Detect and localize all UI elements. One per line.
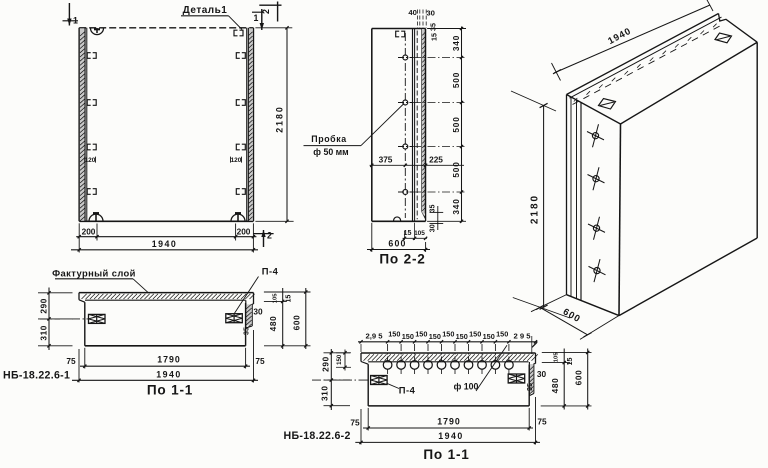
svg-text:375: 375: [379, 154, 393, 164]
svg-text:Деталь1: Деталь1: [183, 5, 228, 16]
svg-text:1940: 1940: [438, 431, 464, 441]
svg-text:75: 75: [66, 356, 76, 366]
svg-text:150: 150: [402, 332, 414, 341]
svg-text:П-4: П-4: [262, 266, 279, 277]
svg-text:35: 35: [526, 383, 534, 391]
svg-text:75: 75: [350, 417, 360, 427]
svg-text:150: 150: [429, 332, 441, 341]
svg-text:30: 30: [429, 224, 437, 232]
svg-text:150: 150: [483, 332, 495, 341]
svg-text:310: 310: [320, 385, 330, 401]
svg-text:480: 480: [268, 316, 278, 332]
svg-text:НБ-18.22.6-2: НБ-18.22.6-2: [284, 430, 351, 442]
svg-text:1940: 1940: [152, 239, 178, 249]
svg-text:500: 500: [451, 161, 461, 177]
svg-text:150: 150: [336, 354, 343, 365]
svg-text:2: 2: [267, 231, 272, 241]
svg-text:225: 225: [429, 154, 443, 164]
svg-text:120: 120: [85, 157, 96, 164]
svg-text:600: 600: [573, 370, 583, 386]
svg-text:15: 15: [566, 358, 574, 366]
svg-text:150: 150: [442, 330, 454, 339]
svg-text:500: 500: [451, 116, 461, 132]
svg-text:2180: 2180: [530, 194, 541, 224]
svg-text:НБ-18.22.6-1: НБ-18.22.6-1: [3, 370, 70, 382]
svg-text:105: 105: [414, 230, 425, 237]
svg-text:35: 35: [243, 327, 251, 335]
svg-text:600: 600: [292, 315, 302, 331]
svg-text:105: 105: [273, 293, 279, 304]
svg-text:340: 340: [451, 198, 461, 214]
svg-text:1: 1: [73, 16, 78, 26]
svg-text:15: 15: [430, 33, 438, 41]
svg-text:75: 75: [255, 356, 265, 366]
svg-text:500: 500: [451, 72, 461, 88]
svg-text:340: 340: [451, 35, 461, 51]
svg-text:По 2-2: По 2-2: [379, 252, 425, 267]
svg-text:600: 600: [388, 239, 406, 249]
svg-text:40: 40: [408, 8, 417, 17]
svg-text:2180: 2180: [275, 105, 285, 133]
svg-text:150: 150: [469, 330, 481, 339]
svg-text:30: 30: [253, 307, 263, 317]
svg-text:200: 200: [237, 227, 251, 237]
svg-text:1790: 1790: [157, 355, 181, 365]
svg-text:По 1-1: По 1-1: [423, 447, 469, 462]
svg-text:30: 30: [426, 8, 435, 17]
svg-text:По 1-1: По 1-1: [147, 383, 193, 398]
svg-text:120: 120: [231, 157, 242, 164]
svg-text:310: 310: [38, 325, 48, 341]
svg-text:75: 75: [537, 416, 547, 426]
svg-text:290: 290: [321, 356, 331, 372]
svg-text:ф 50 мм: ф 50 мм: [313, 147, 348, 157]
svg-text:200: 200: [82, 227, 96, 237]
svg-text:35: 35: [430, 23, 438, 31]
svg-text:Фактурный слой: Фактурный слой: [52, 268, 136, 279]
svg-text:1940: 1940: [156, 370, 182, 380]
svg-text:150: 150: [388, 330, 400, 339]
svg-text:2 9 5: 2 9 5: [513, 332, 531, 341]
svg-text:30: 30: [537, 369, 547, 379]
svg-text:480: 480: [550, 378, 560, 394]
svg-text:Пробка: Пробка: [311, 134, 346, 144]
svg-text:П-4: П-4: [399, 385, 416, 396]
svg-text:150: 150: [415, 330, 427, 339]
svg-text:1790: 1790: [437, 416, 461, 426]
svg-text:150: 150: [456, 332, 468, 341]
svg-text:15: 15: [404, 229, 412, 237]
svg-text:2: 2: [261, 9, 271, 14]
svg-text:35: 35: [429, 205, 437, 213]
svg-text:ф 100: ф 100: [454, 382, 479, 392]
svg-text:290: 290: [38, 298, 48, 314]
svg-text:2,9 5: 2,9 5: [365, 332, 383, 341]
svg-text:150: 150: [496, 330, 508, 339]
svg-text:15: 15: [285, 295, 293, 303]
svg-text:1: 1: [254, 13, 259, 23]
svg-text:105: 105: [554, 352, 560, 363]
